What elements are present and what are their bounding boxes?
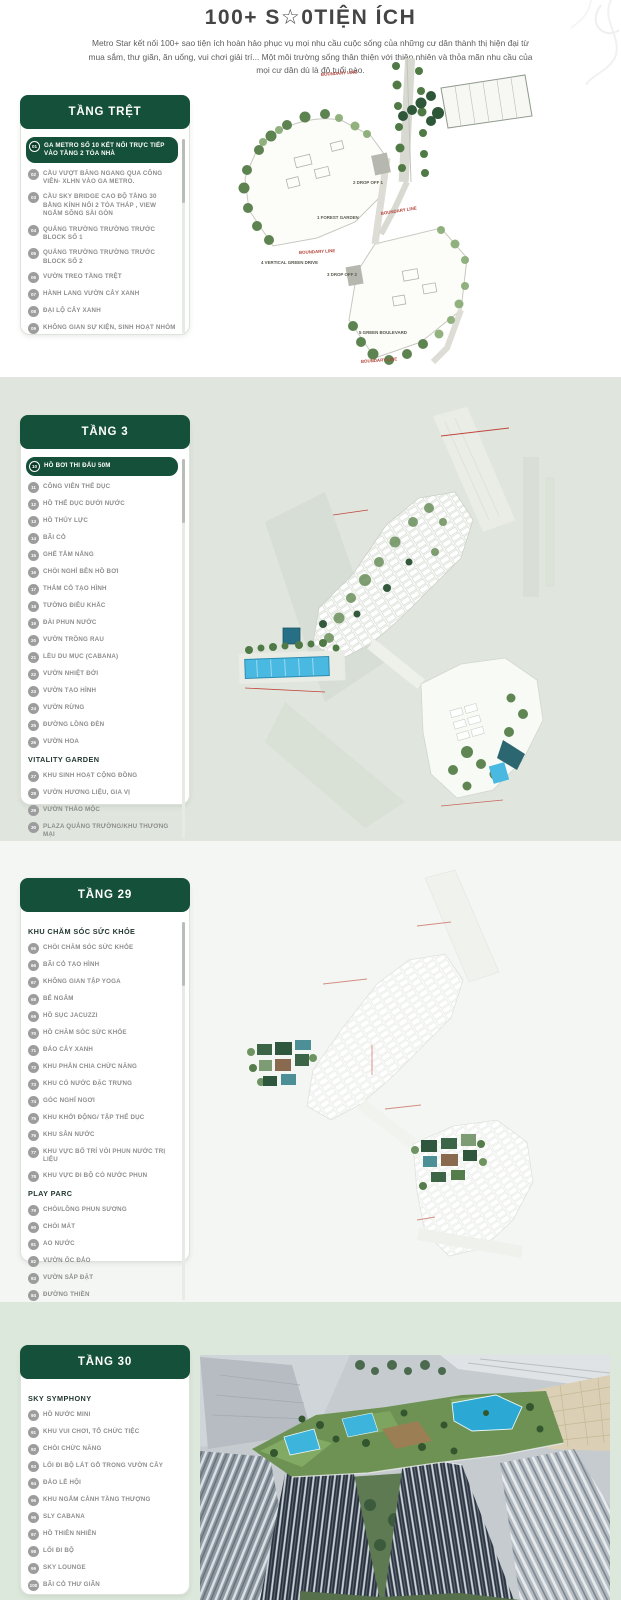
amenity-item-17[interactable]: 17THẢM CỎ TẠO HÌNH xyxy=(28,583,176,595)
item-number-badge: 14 xyxy=(28,533,39,544)
item-number-badge: 95 xyxy=(28,1495,39,1506)
amenity-item-12[interactable]: 12HỒ THỂ DỤC DƯỚI NƯỚC xyxy=(28,498,176,510)
item-number-badge: 74 xyxy=(28,1096,39,1107)
item-label: VƯỜN TẠO HÌNH xyxy=(43,685,96,695)
item-number-badge: 98 xyxy=(28,1546,39,1557)
amenity-item-30[interactable]: 30PLAZA QUẢNG TRƯỜNG/KHU THƯƠNG MẠI xyxy=(28,821,176,840)
card-scrollbar[interactable] xyxy=(182,922,185,1300)
plan-label: 1 FOREST GARDEN xyxy=(317,215,359,220)
item-number-badge: 92 xyxy=(28,1444,39,1455)
item-number-badge: 94 xyxy=(28,1478,39,1489)
item-label: VƯỜN HOA xyxy=(43,736,79,746)
item-label: HỒ THỦY LỰC xyxy=(43,515,88,525)
item-number-badge: 12 xyxy=(28,499,39,510)
item-label: HỒ BƠI THI ĐẤU 50M xyxy=(44,460,111,470)
amenity-list: 01GA METRO SỐ 10 KẾT NỐI TRỰC TIẾP VÀO T… xyxy=(21,129,189,345)
amenity-item-05[interactable]: 05QUẢNG TRƯỜNG TRƯỜNG TRƯỚC BLOCK SỐ 2 xyxy=(28,247,176,266)
amenity-item-28[interactable]: 28VƯỜN HƯƠNG LIỆU, GIA VỊ xyxy=(28,787,176,799)
amenity-list: SKY SYMPHONY90HỒ NƯỚC MINI91KHU VUI CHƠI… xyxy=(21,1379,189,1600)
amenity-item-25[interactable]: 25ĐƯỜNG LỒNG ĐÈN xyxy=(28,719,176,731)
item-number-badge: 91 xyxy=(28,1427,39,1438)
scrollbar-thumb[interactable] xyxy=(182,922,185,986)
item-number-badge: 66 xyxy=(28,960,39,971)
amenity-item-07[interactable]: 07HÀNH LANG VƯỜN CÂY XANH xyxy=(28,288,176,300)
item-label: TƯỜNG ĐIÊU KHẮC xyxy=(43,600,106,610)
plan-label: 3 DROP OFF 2 xyxy=(327,272,357,277)
item-number-badge: 27 xyxy=(28,771,39,782)
plan-label: 4 VERTICAL GREEN DRIVE xyxy=(261,260,318,265)
item-number-badge: 22 xyxy=(28,669,39,680)
amenity-item-26[interactable]: 26VƯỜN HOA xyxy=(28,736,176,748)
amenity-item-65[interactable]: 65CHÒI CHĂM SÓC SỨC KHỎE xyxy=(28,942,176,954)
amenity-item-82[interactable]: 82VƯỜN ỐC ĐẢO xyxy=(28,1255,176,1267)
item-number-badge: 03 xyxy=(28,192,39,203)
plan-label: BOUNDARY LINE xyxy=(299,248,336,255)
amenity-item-08[interactable]: 08ĐẠI LỘ CÂY XANH xyxy=(28,305,176,317)
item-number-badge: 90 xyxy=(28,1410,39,1421)
item-number-badge: 26 xyxy=(28,737,39,748)
item-number-badge: 93 xyxy=(28,1461,39,1472)
item-number-badge: 18 xyxy=(28,601,39,612)
scrollbar-thumb[interactable] xyxy=(182,139,185,203)
amenity-item-75[interactable]: 75KHU KHỞI ĐỘNG/ TẬP THỂ DỤC xyxy=(28,1112,176,1124)
amenity-item-18[interactable]: 18TƯỜNG ĐIÊU KHẮC xyxy=(28,600,176,612)
item-number-badge: 30 xyxy=(28,822,39,833)
item-number-badge: 70 xyxy=(28,1028,39,1039)
item-number-badge: 10 xyxy=(29,461,40,472)
amenity-list: KHU CHĂM SÓC SỨC KHỎE65CHÒI CHĂM SÓC SỨC… xyxy=(21,912,189,1312)
item-label: CHÒI NGHỈ BÊN HỒ BƠI xyxy=(43,566,119,576)
amenity-item-79[interactable]: 79CHÒI/LỒNG PHUN SƯƠNG xyxy=(28,1204,176,1216)
item-number-badge: 04 xyxy=(28,225,39,236)
item-number-badge: 67 xyxy=(28,977,39,988)
item-number-badge: 68 xyxy=(28,994,39,1005)
item-label: VƯỜN SẮP ĐẶT xyxy=(43,1272,93,1282)
item-number-badge: 78 xyxy=(28,1171,39,1182)
amenity-item-70[interactable]: 70HỒ CHĂM SÓC SỨC KHỎE xyxy=(28,1027,176,1039)
item-label: KHU NGẮM CẢNH TẦNG THƯỢNG xyxy=(43,1494,151,1504)
item-label: HỒ THIÊN NHIÊN xyxy=(43,1528,96,1538)
item-number-badge: 07 xyxy=(28,289,39,300)
item-number-badge: 82 xyxy=(28,1256,39,1267)
amenity-item-10[interactable]: 10HỒ BƠI THI ĐẤU 50M xyxy=(26,457,178,476)
item-label: HỒ CHĂM SÓC SỨC KHỎE xyxy=(43,1027,127,1037)
item-number-badge: 77 xyxy=(28,1147,39,1158)
item-number-badge: 73 xyxy=(28,1079,39,1090)
item-label: KHU VỰC ĐI BỘ CÓ NƯỚC PHUN xyxy=(43,1170,147,1180)
item-label: GA METRO SỐ 10 KẾT NỐI TRỰC TIẾP VÀO TẦN… xyxy=(44,140,173,159)
amenity-item-96[interactable]: 96SLY CABANA xyxy=(28,1511,176,1523)
item-number-badge: 08 xyxy=(28,306,39,317)
item-label: CHÒI CHĂM SÓC SỨC KHỎE xyxy=(43,942,133,952)
item-label: KHÔNG GIAN TẬP YOGA xyxy=(43,976,121,986)
item-number-badge: 84 xyxy=(28,1290,39,1301)
site-plan-level-3 xyxy=(205,402,605,832)
amenity-item-11[interactable]: 11CÔNG VIÊN THỂ DỤC xyxy=(28,481,176,493)
amenity-item-21[interactable]: 21LỀU DU MỤC (CABANA) xyxy=(28,651,176,663)
item-label: THẢM CỎ TẠO HÌNH xyxy=(43,583,107,593)
item-number-badge: 19 xyxy=(28,618,39,629)
amenity-item-84[interactable]: 84ĐƯỜNG THIỀN xyxy=(28,1289,176,1301)
amenity-item-16[interactable]: 16CHÒI NGHỈ BÊN HỒ BƠI xyxy=(28,566,176,578)
amenity-item-80[interactable]: 80CHÒI MÁT xyxy=(28,1221,176,1233)
item-number-badge: 11 xyxy=(28,482,39,493)
amenity-item-19[interactable]: 19ĐÀI PHUN NƯỚC xyxy=(28,617,176,629)
item-number-badge: 80 xyxy=(28,1222,39,1233)
item-number-badge: 65 xyxy=(28,943,39,954)
item-label: VƯỜN HƯƠNG LIỆU, GIA VỊ xyxy=(43,787,130,797)
item-label: QUẢNG TRƯỜNG TRƯỜNG TRƯỚC BLOCK SỐ 2 xyxy=(43,247,176,266)
item-label: PLAZA QUẢNG TRƯỜNG/KHU THƯƠNG MẠI xyxy=(43,821,176,840)
floor-card-tang-30: TẦNG 30 SKY SYMPHONY90HỒ NƯỚC MINI91KHU … xyxy=(20,1345,190,1595)
amenity-item-91[interactable]: 91KHU VUI CHƠI, TỔ CHỨC TIỆC xyxy=(28,1426,176,1438)
item-number-badge: 24 xyxy=(28,703,39,714)
item-label: HỒ NƯỚC MINI xyxy=(43,1409,91,1419)
item-number-badge: 72 xyxy=(28,1062,39,1073)
item-number-badge: 83 xyxy=(28,1273,39,1284)
item-number-badge: 06 xyxy=(28,272,39,283)
item-number-badge: 100 xyxy=(28,1580,39,1591)
item-label: VƯỜN ỐC ĐẢO xyxy=(43,1255,91,1265)
item-label: VƯỜN NHIỆT ĐỚI xyxy=(43,668,98,678)
scrollbar-thumb[interactable] xyxy=(182,459,185,523)
amenity-item-66[interactable]: 66BÃI CỎ TẠO HÌNH xyxy=(28,959,176,971)
site-plan-level-29 xyxy=(205,868,605,1258)
item-number-badge: 25 xyxy=(28,720,39,731)
amenity-item-23[interactable]: 23VƯỜN TẠO HÌNH xyxy=(28,685,176,697)
item-number-badge: 15 xyxy=(28,550,39,561)
item-number-badge: 13 xyxy=(28,516,39,527)
item-label: HÀNH LANG VƯỜN CÂY XANH xyxy=(43,288,139,298)
amenity-item-06[interactable]: 06VƯỜN TREO TẦNG TRỆT xyxy=(28,271,176,283)
item-number-badge: 81 xyxy=(28,1239,39,1250)
item-label: HỒ SỤC JACUZZI xyxy=(43,1010,98,1020)
item-label: BÃI CỎ xyxy=(43,532,66,542)
amenity-item-94[interactable]: 94ĐẢO LỄ HỘI xyxy=(28,1477,176,1489)
item-number-badge: 09 xyxy=(28,323,39,334)
item-label: KHU SÂN NƯỚC xyxy=(43,1129,95,1139)
item-label: CHÒI CHỨC NĂNG xyxy=(43,1443,101,1453)
card-scrollbar[interactable] xyxy=(182,139,185,333)
plan-label: 2 DROP OFF 1 xyxy=(353,180,383,185)
site-plan-ground-floor: BOUNDARY LINE 2 DROP OFF 1 BOUNDARY LINE… xyxy=(235,58,621,365)
amenity-item-13[interactable]: 13HỒ THỦY LỰC xyxy=(28,515,176,527)
amenity-item-02[interactable]: 02CẦU VƯỢT BĂNG NGANG QUA CÔNG VIÊN- XLH… xyxy=(28,168,176,187)
floor-card-title: TẦNG 30 xyxy=(20,1345,190,1379)
item-label: KHU KHỞI ĐỘNG/ TẬP THỂ DỤC xyxy=(43,1112,144,1122)
item-label: AO NƯỚC xyxy=(43,1238,75,1248)
amenity-item-20[interactable]: 20VƯỜN TRỒNG RAU xyxy=(28,634,176,646)
item-label: BÃI CỎ TẠO HÌNH xyxy=(43,959,99,969)
item-label: GHẾ TẮM NẮNG xyxy=(43,549,94,559)
item-label: ĐẢO CÂY XANH xyxy=(43,1044,93,1054)
item-label: KHU VỰC BỐ TRÍ VÒI PHUN NƯỚC TRỊ LIỆU xyxy=(43,1146,176,1165)
amenity-item-71[interactable]: 71ĐẢO CÂY XANH xyxy=(28,1044,176,1056)
group-heading: VITALITY GARDEN xyxy=(28,755,176,764)
item-label: SLY CABANA xyxy=(43,1511,85,1521)
amenity-item-68[interactable]: 68BỂ NGÂM xyxy=(28,993,176,1005)
amenity-item-100[interactable]: 100BÃI CỎ THƯ GIÃN xyxy=(28,1579,176,1591)
amenity-item-99[interactable]: 99SKY LOUNGE xyxy=(28,1562,176,1574)
amenity-item-92[interactable]: 92CHÒI CHỨC NĂNG xyxy=(28,1443,176,1455)
item-number-badge: 69 xyxy=(28,1011,39,1022)
item-label: KHÔNG GIAN SỰ KIỆN, SINH HOẠT NHÓM xyxy=(43,322,176,332)
item-label: CẦU VƯỢT BĂNG NGANG QUA CÔNG VIÊN- XLHN … xyxy=(43,168,176,187)
item-number-badge: 97 xyxy=(28,1529,39,1540)
amenity-item-73[interactable]: 73KHU CÓ NƯỚC ĐẶC TRƯNG xyxy=(28,1078,176,1090)
item-number-badge: 05 xyxy=(28,248,39,259)
floor-card-tang-29: TẦNG 29 KHU CHĂM SÓC SỨC KHỎE65CHÒI CHĂM… xyxy=(20,878,190,1262)
plan-label: 5 GREEN BOULEVARD xyxy=(359,330,407,335)
item-label: GÓC NGHỈ NGƠI xyxy=(43,1095,95,1105)
item-label: HỒ THỂ DỤC DƯỚI NƯỚC xyxy=(43,498,125,508)
item-number-badge: 75 xyxy=(28,1113,39,1124)
item-number-badge: 76 xyxy=(28,1130,39,1141)
floor-card-title: TẦNG 29 xyxy=(20,878,190,912)
item-label: KHU SINH HOẠT CỘNG ĐỒNG xyxy=(43,770,137,780)
floor-card-title: TẦNG TRỆT xyxy=(20,95,190,129)
sky-garden-aerial-render xyxy=(200,1355,610,1600)
amenity-item-97[interactable]: 97HỒ THIÊN NHIÊN xyxy=(28,1528,176,1540)
item-number-badge: 99 xyxy=(28,1563,39,1574)
metro-star-amenities-page: 100+ S☆0TIỆN ÍCH Metro Star kết nối 100+… xyxy=(0,0,621,1600)
amenity-item-78[interactable]: 78KHU VỰC ĐI BỘ CÓ NƯỚC PHUN xyxy=(28,1170,176,1182)
amenity-item-77[interactable]: 77KHU VỰC BỐ TRÍ VÒI PHUN NƯỚC TRỊ LIỆU xyxy=(28,1146,176,1165)
amenity-item-72[interactable]: 72KHU PHÂN CHIA CHỨC NĂNG xyxy=(28,1061,176,1073)
item-label: BỂ NGÂM xyxy=(43,993,74,1003)
amenity-list: 10HỒ BƠI THI ĐẤU 50M11CÔNG VIÊN THỂ DỤC1… xyxy=(21,449,189,851)
item-label: KHU PHÂN CHIA CHỨC NĂNG xyxy=(43,1061,137,1071)
amenity-item-83[interactable]: 83VƯỜN SẮP ĐẶT xyxy=(28,1272,176,1284)
item-label: QUẢNG TRƯỜNG TRƯỜNG TRƯỚC BLOCK SỐ 1 xyxy=(43,224,176,243)
card-scrollbar[interactable] xyxy=(182,459,185,839)
amenity-item-69[interactable]: 69HỒ SỤC JACUZZI xyxy=(28,1010,176,1022)
item-number-badge: 71 xyxy=(28,1045,39,1056)
item-number-badge: 20 xyxy=(28,635,39,646)
item-label: CHÒI/LỒNG PHUN SƯƠNG xyxy=(43,1204,127,1214)
item-label: ĐÀI PHUN NƯỚC xyxy=(43,617,97,627)
item-label: ĐƯỜNG THIỀN xyxy=(43,1289,90,1299)
item-label: CÔNG VIÊN THỂ DỤC xyxy=(43,481,110,491)
amenity-item-22[interactable]: 22VƯỜN NHIỆT ĐỚI xyxy=(28,668,176,680)
item-number-badge: 01 xyxy=(29,141,40,152)
amenity-item-29[interactable]: 29VƯỜN THẢO MỘC xyxy=(28,804,176,816)
item-label: KHU VUI CHƠI, TỔ CHỨC TIỆC xyxy=(43,1426,139,1436)
item-label: LỐI ĐI BỘ LÁT GỖ TRONG VƯỜN CÂY xyxy=(43,1460,163,1470)
floor-card-tang-tret: TẦNG TRỆT 01GA METRO SỐ 10 KẾT NỐI TRỰC … xyxy=(20,95,190,335)
item-label: VƯỜN THẢO MỘC xyxy=(43,804,100,814)
floor-card-tang-3: TẦNG 3 10HỒ BƠI THI ĐẤU 50M11CÔNG VIÊN T… xyxy=(20,415,190,805)
amenity-item-93[interactable]: 93LỐI ĐI BỘ LÁT GỖ TRONG VƯỜN CÂY xyxy=(28,1460,176,1472)
item-label: ĐƯỜNG LỒNG ĐÈN xyxy=(43,719,104,729)
amenity-item-15[interactable]: 15GHẾ TẮM NẮNG xyxy=(28,549,176,561)
amenity-item-95[interactable]: 95KHU NGẮM CẢNH TẦNG THƯỢNG xyxy=(28,1494,176,1506)
item-label: CẦU SKY BRIDGE CAO ĐỘ TẦNG 30 BẰNG KÍNH … xyxy=(43,191,176,218)
amenity-item-01[interactable]: 01GA METRO SỐ 10 KẾT NỐI TRỰC TIẾP VÀO T… xyxy=(26,137,178,163)
item-label: LỐI ĐI BỘ xyxy=(43,1545,74,1555)
item-number-badge: 02 xyxy=(28,169,39,180)
page-title: 100+ S☆0TIỆN ÍCH xyxy=(0,5,621,30)
amenity-item-14[interactable]: 14BÃI CỎ xyxy=(28,532,176,544)
amenity-item-03[interactable]: 03CẦU SKY BRIDGE CAO ĐỘ TẦNG 30 BẰNG KÍN… xyxy=(28,191,176,218)
amenity-item-24[interactable]: 24VƯỜN RỪNG xyxy=(28,702,176,714)
amenity-item-74[interactable]: 74GÓC NGHỈ NGƠI xyxy=(28,1095,176,1107)
item-label: BÃI CỎ THƯ GIÃN xyxy=(43,1579,100,1589)
item-label: CHÒI MÁT xyxy=(43,1221,75,1231)
plan-label: BOUNDARY LINE xyxy=(321,69,358,77)
amenity-item-81[interactable]: 81AO NƯỚC xyxy=(28,1238,176,1250)
item-label: VƯỜN TRỒNG RAU xyxy=(43,634,104,644)
item-number-badge: 17 xyxy=(28,584,39,595)
group-heading: PLAY PARC xyxy=(28,1189,176,1198)
item-label: KHU CÓ NƯỚC ĐẶC TRƯNG xyxy=(43,1078,132,1088)
amenity-item-04[interactable]: 04QUẢNG TRƯỜNG TRƯỜNG TRƯỚC BLOCK SỐ 1 xyxy=(28,224,176,243)
item-label: VƯỜN TREO TẦNG TRỆT xyxy=(43,271,122,281)
item-label: ĐẠI LỘ CÂY XANH xyxy=(43,305,101,315)
amenity-item-09[interactable]: 09KHÔNG GIAN SỰ KIỆN, SINH HOẠT NHÓM xyxy=(28,322,176,334)
item-number-badge: 23 xyxy=(28,686,39,697)
item-label: LỀU DU MỤC (CABANA) xyxy=(43,651,118,661)
item-number-badge: 79 xyxy=(28,1205,39,1216)
item-label: VƯỜN RỪNG xyxy=(43,702,84,712)
item-number-badge: 28 xyxy=(28,788,39,799)
floor-card-title: TẦNG 3 xyxy=(20,415,190,449)
amenity-item-27[interactable]: 27KHU SINH HOẠT CỘNG ĐỒNG xyxy=(28,770,176,782)
item-number-badge: 21 xyxy=(28,652,39,663)
group-heading: KHU CHĂM SÓC SỨC KHỎE xyxy=(28,927,176,936)
amenity-item-76[interactable]: 76KHU SÂN NƯỚC xyxy=(28,1129,176,1141)
item-label: ĐẢO LỄ HỘI xyxy=(43,1477,81,1487)
group-heading: SKY SYMPHONY xyxy=(28,1394,176,1403)
item-number-badge: 16 xyxy=(28,567,39,578)
amenity-item-67[interactable]: 67KHÔNG GIAN TẬP YOGA xyxy=(28,976,176,988)
item-number-badge: 29 xyxy=(28,805,39,816)
amenity-item-90[interactable]: 90HỒ NƯỚC MINI xyxy=(28,1409,176,1421)
amenity-item-98[interactable]: 98LỐI ĐI BỘ xyxy=(28,1545,176,1557)
item-label: SKY LOUNGE xyxy=(43,1562,86,1572)
item-number-badge: 96 xyxy=(28,1512,39,1523)
